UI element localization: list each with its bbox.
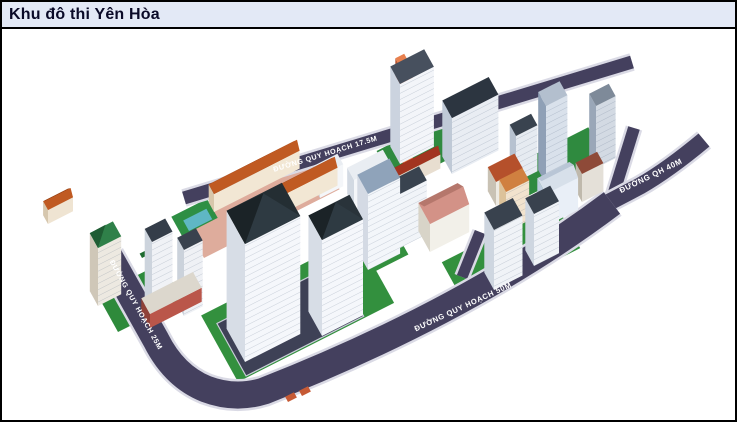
- window-frame: Khu đô thi Yên Hòa ĐƯỜNG QUY HOẠCH 25MĐƯ…: [0, 0, 737, 422]
- render-canvas: ĐƯỜNG QUY HOẠCH 25MĐƯỜNG QUY HOẠCH 17.5M…: [2, 29, 735, 418]
- page-title: Khu đô thi Yên Hòa: [9, 6, 160, 24]
- title-bar: Khu đô thi Yên Hòa: [2, 2, 735, 29]
- tower-tall-blue-side: [538, 92, 546, 184]
- site-plan-3d-render: ĐƯỜNG QUY HOẠCH 25MĐƯỜNG QUY HOẠCH 17.5M…: [2, 29, 735, 418]
